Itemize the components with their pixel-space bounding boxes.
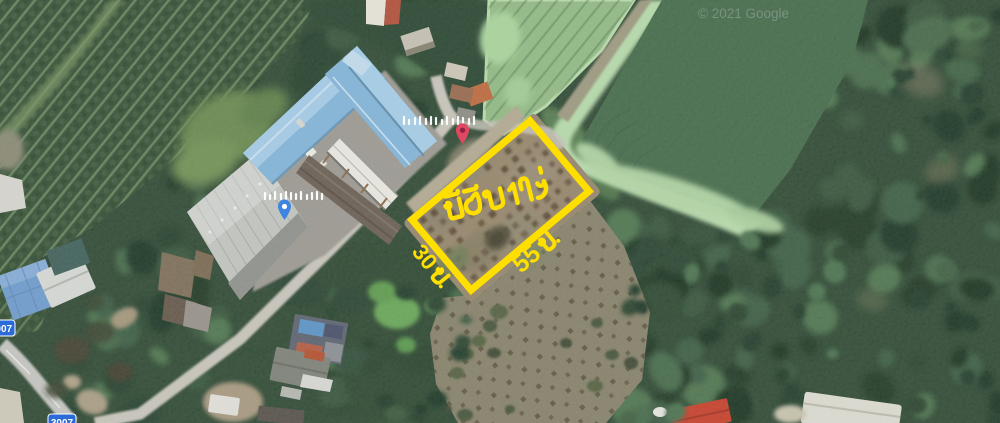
svg-text:3007: 3007	[0, 324, 13, 335]
svg-text:3007: 3007	[51, 418, 74, 423]
svg-text:© 2021 Google: © 2021 Google	[698, 6, 789, 21]
